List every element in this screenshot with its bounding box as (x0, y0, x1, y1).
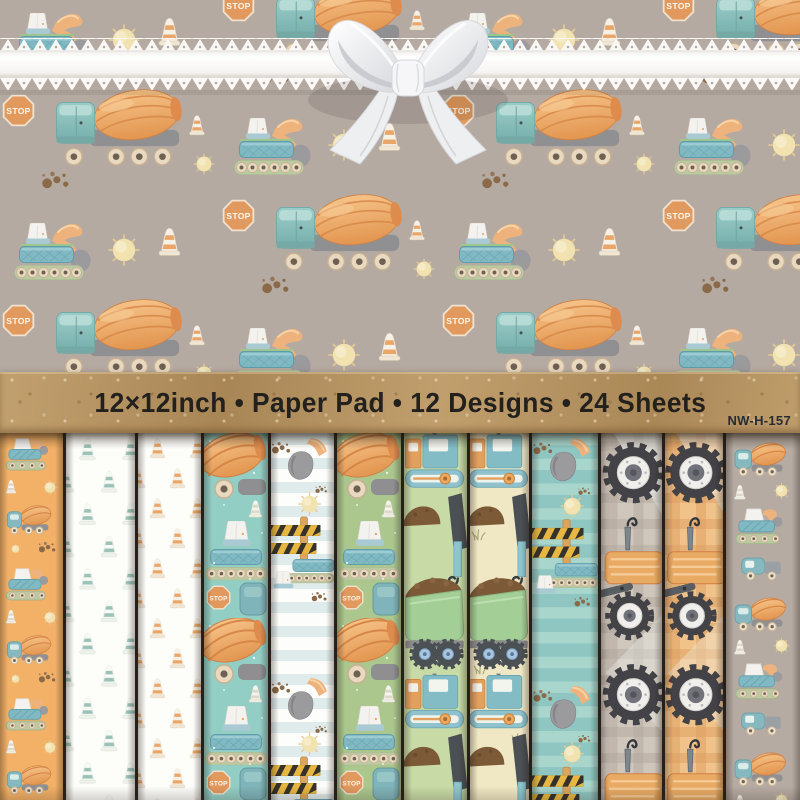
paper-swatch-taupe-vehicles (726, 433, 800, 800)
paper-pattern-svg (601, 433, 662, 800)
paper-swatch-orange-plaid-tractor (665, 433, 723, 800)
paper-swatch-cream-dump-truck (470, 433, 529, 800)
paper-pattern-svg (138, 433, 201, 800)
paper-designs-shelf (0, 433, 800, 800)
banner-title: 12×12inch • Paper Pad • 12 Designs • 24 … (94, 387, 706, 419)
paper-pattern-svg (204, 433, 268, 800)
paper-pattern-svg (0, 433, 63, 800)
construction-pattern-preview (0, 0, 800, 372)
product-code-label: NW-H-157 (727, 413, 791, 428)
paper-swatch-green-dump-truck (404, 433, 467, 800)
paper-pattern-svg (404, 433, 467, 800)
paper-swatch-taupe-plaid-tractor (601, 433, 662, 800)
paper-swatch-orange-vehicles (0, 433, 63, 800)
paper-swatch-white-stripes-digger (271, 433, 334, 800)
paper-pad-product-image: STOP (0, 0, 800, 800)
paper-swatch-teal-stripes-digger (532, 433, 598, 800)
paper-swatch-green-mixer (337, 433, 401, 800)
paper-pattern-svg (532, 433, 598, 800)
paper-swatch-orange-cones (138, 433, 201, 800)
paper-pattern-svg (271, 433, 334, 800)
paper-pattern-svg (726, 433, 800, 800)
paper-swatch-teal-mixer (204, 433, 268, 800)
paper-pattern-svg (66, 433, 135, 800)
paper-pattern-svg (665, 433, 723, 800)
paper-pattern-svg (337, 433, 401, 800)
kraft-banner: 12×12inch • Paper Pad • 12 Designs • 24 … (0, 372, 800, 433)
paper-swatch-teal-cones (66, 433, 135, 800)
paper-pattern-svg (470, 433, 529, 800)
